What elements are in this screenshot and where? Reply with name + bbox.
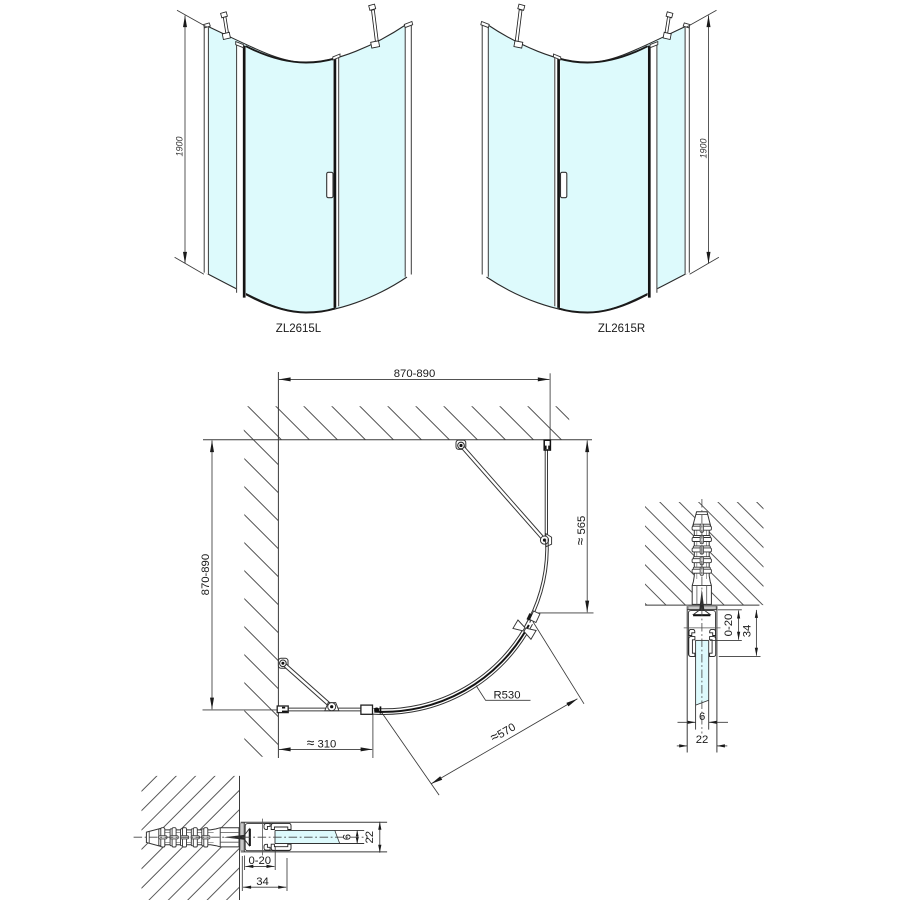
- svg-text:870-890: 870-890: [394, 368, 435, 380]
- svg-text:1900: 1900: [698, 138, 708, 158]
- svg-text:6: 6: [699, 711, 705, 723]
- svg-text:0-20: 0-20: [248, 855, 271, 867]
- svg-text:22: 22: [696, 734, 709, 746]
- svg-text:34: 34: [256, 876, 269, 888]
- svg-text:R530: R530: [493, 689, 520, 701]
- svg-text:ZL2615L: ZL2615L: [276, 323, 322, 335]
- svg-text:6: 6: [341, 834, 353, 840]
- svg-text:0-20: 0-20: [723, 614, 735, 637]
- svg-text:870-890: 870-890: [200, 554, 212, 595]
- svg-text:34: 34: [742, 625, 754, 638]
- svg-text:22: 22: [364, 831, 376, 844]
- svg-text:ZL2615R: ZL2615R: [598, 323, 645, 335]
- svg-text:1900: 1900: [174, 136, 184, 156]
